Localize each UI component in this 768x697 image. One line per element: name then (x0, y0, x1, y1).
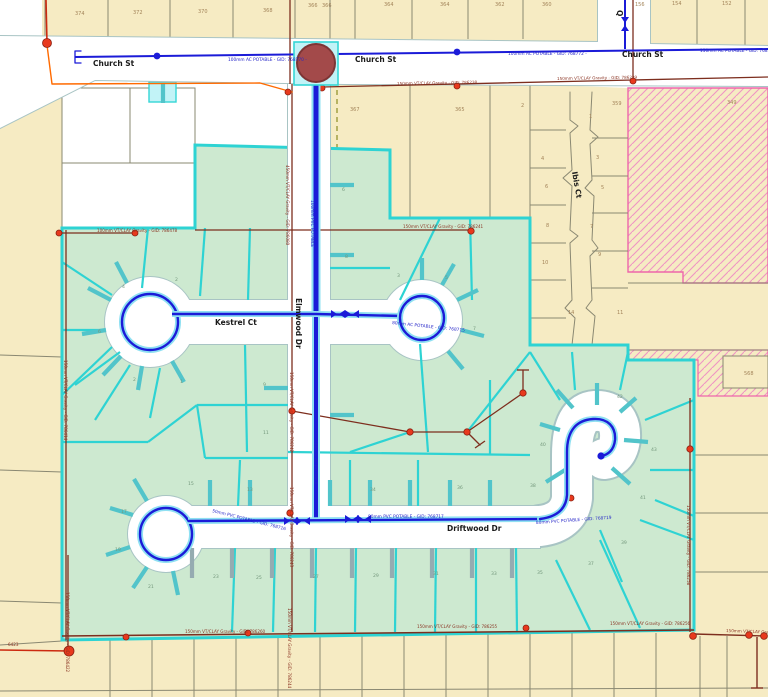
lot-number: 43 (651, 447, 657, 453)
parcel-block-unshaded (62, 88, 195, 228)
sewer-pipe-label: 150mm VT/CLAY Gravity - GID: 786242 (289, 372, 294, 453)
sewer-node-icon (123, 634, 129, 640)
zone-overlay-hatched (628, 88, 768, 283)
sewer-node-icon (687, 446, 693, 452)
water-pipe-label: 80mm PVC POTABLE - GID: 768717 (368, 514, 444, 520)
sewer-lateral (624, 440, 648, 442)
parcel-block-north (42, 0, 598, 42)
sewer-pipe-label: 150mm VT/CLAY Gravity - GID: 786244 (287, 608, 292, 689)
sewer-node-icon (464, 429, 470, 435)
lot-number: 42 (617, 394, 623, 400)
parcel-block-east (694, 360, 768, 640)
sewer-pipe-label: 150mm VT/CLAY Gravity - GID: 786256 (610, 621, 691, 626)
parcel-block-west (0, 97, 62, 697)
parcel-number: 154 (672, 1, 682, 7)
parcel-number: 368 (263, 8, 273, 14)
gis-map-viewport[interactable]: 100mm AC POTABLE - GID: 768770 -100mm AC… (0, 0, 768, 697)
lot-number: 38 (530, 483, 536, 489)
parcel-number: 364 (440, 2, 450, 8)
street-name-label: Q (615, 10, 624, 16)
sewer-node-icon (690, 633, 697, 640)
sewer-node-icon (407, 429, 413, 435)
lot-number: 27 (313, 574, 319, 580)
lot-number: 15 (188, 481, 194, 487)
gis-map-canvas[interactable]: 100mm AC POTABLE - GID: 768770 -100mm AC… (0, 0, 768, 697)
parcel-number: 360 (542, 2, 552, 8)
sewer-pipe-label: 150mm VT/CLAY Gravity - GID: 786241 (403, 224, 484, 229)
lot-number: 31 (433, 571, 439, 577)
parcel-number: 372 (133, 10, 143, 16)
sewer-pipe-label: 450mm VT/CLAY Gravity - GID: 786080 (285, 165, 290, 246)
parcel-number: 2 (521, 103, 524, 109)
lot-number: 33 (491, 571, 497, 577)
parcel-number: 9 (598, 252, 601, 258)
parcel-number: 156 (635, 2, 645, 8)
sewer-node-icon (597, 452, 604, 459)
lot-number: 35 (537, 570, 543, 576)
parcel-block-northeast (650, 0, 768, 46)
water-pipe-label: 150mm AC POTABLE - GID: 768773 - (700, 48, 768, 54)
lot-number: 34 (370, 487, 376, 493)
parcel-number: 14 (568, 310, 574, 316)
reservoir-icon[interactable] (297, 44, 335, 82)
parcel-number: 370 (198, 9, 208, 15)
parcel-number: 4 (541, 156, 544, 162)
sewer-node-icon (154, 53, 161, 60)
sewer-main (46, 0, 47, 43)
lot-number: 39 (621, 540, 627, 546)
parcel-number: 367 (350, 107, 360, 113)
parcel-number: 11 (617, 310, 623, 316)
sewer-node-icon (56, 230, 62, 236)
parcel-number: 364 (384, 2, 394, 8)
sewer-pipe-label: 150mm VT/CLAY Gravity - GID: 786422 (65, 592, 70, 673)
sewer-node-icon (520, 390, 526, 396)
sewer-pipe-label: 100mm VT/CLAY Gravity - GID: 786478 (97, 228, 178, 233)
lot-number: 37 (588, 561, 594, 567)
lot-number: 2 (175, 277, 178, 283)
lot-number: 11 (263, 430, 269, 436)
reservoir-node[interactable] (294, 42, 338, 85)
street-name-label: Church St (93, 59, 135, 68)
parcel-number: 3 (596, 155, 599, 161)
lot-number: 41 (640, 495, 646, 501)
street-name-label: Church St (622, 50, 664, 59)
lot-number: 7 (473, 326, 476, 332)
water-pipe-label: 100mm AC POTABLE - GID: 768772 - (508, 51, 587, 57)
water-pipe-label: 100mm AC POTABLE - GID: 768770 - (228, 57, 307, 63)
sewer-node-icon (454, 49, 461, 56)
lot-number: 5 (445, 275, 448, 281)
parcel-number: 6 (545, 184, 548, 190)
lot-number: 1 (180, 379, 183, 385)
lot-boundary-line (355, 548, 356, 632)
lot-number: 19 (115, 547, 121, 553)
parcel-number: 1 (589, 114, 592, 120)
parcel-number: 366 (308, 3, 318, 9)
lot-number: 40 (540, 442, 546, 448)
sewer-pipe-label: 150mm VT/CLAY Gravity - GID: 786255 (417, 624, 498, 629)
parcel-number: 365 (455, 107, 465, 113)
lot-number: 2 (133, 377, 136, 383)
lot-number: 4 (122, 284, 125, 290)
lot-number: 3 (397, 273, 400, 279)
lot-number: 23 (213, 574, 219, 580)
lot-number: 29 (373, 573, 379, 579)
sewer-pipe-label: 150mm VT/CLAY Gravity - GID: 786260 (185, 629, 266, 634)
lot-boundary-line (395, 548, 396, 632)
lot-number: 13 (247, 487, 253, 493)
parcel-block-ibis-ct (530, 84, 628, 345)
lot-boundary-line (435, 548, 436, 632)
water-pipe-label: 100mm AC POTABLE (312, 440, 318, 485)
sewer-pipe-label: 150mm VT/CLAY Gravity - GID: 786414 (63, 360, 68, 441)
lot-number: 21 (148, 584, 154, 590)
lot-number: 25 (256, 575, 262, 581)
parcel-number: 5 (601, 185, 604, 191)
lot-number: 17 (121, 509, 127, 515)
parcel-number: 10 (542, 260, 548, 266)
parcel-number: 8 (546, 223, 549, 229)
sewer-main (0, 650, 69, 651)
street-kestrel-east-bulb (382, 280, 462, 360)
street-name-label: Church St (355, 55, 397, 64)
street-name-label: Kestrel Ct (215, 318, 257, 327)
sewer-node-icon (43, 39, 52, 48)
lot-boundary-line (516, 548, 517, 632)
lot-number: 36 (457, 485, 463, 491)
water-pipe-label: 100mm PVC POTABLE (309, 200, 315, 247)
parcel-number: 359 (612, 101, 622, 107)
street-name-label: Driftwood Dr (447, 524, 502, 533)
parcel-number: 374 (75, 11, 85, 17)
lot-number: 8 (345, 254, 348, 260)
sewer-pipe-label: 6423 (8, 642, 19, 647)
lot-boundary-line (315, 548, 316, 632)
lot-number: 6 (342, 187, 345, 193)
parcel-number: 7 (590, 224, 593, 230)
parcel-number: 568 (744, 371, 754, 377)
parcel-number: 152 (722, 1, 732, 7)
parcel-number: 366 (322, 3, 332, 9)
sewer-pipe-label: 150mm VT/CLAY Gravity - GID: 786258 (686, 505, 691, 586)
sewer-node-icon (285, 89, 291, 95)
sewer-pipe-label: 150mm VT/CLAY Gravity - GID: 786243 (289, 487, 294, 568)
sewer-node-icon (523, 625, 529, 631)
lot-number: 9 (263, 382, 266, 388)
street-name-label: Elmwood Dr (294, 298, 303, 349)
parcel-number: 349 (727, 100, 737, 106)
parcel-number: 362 (495, 2, 505, 8)
lot-number: 6 (98, 329, 101, 335)
